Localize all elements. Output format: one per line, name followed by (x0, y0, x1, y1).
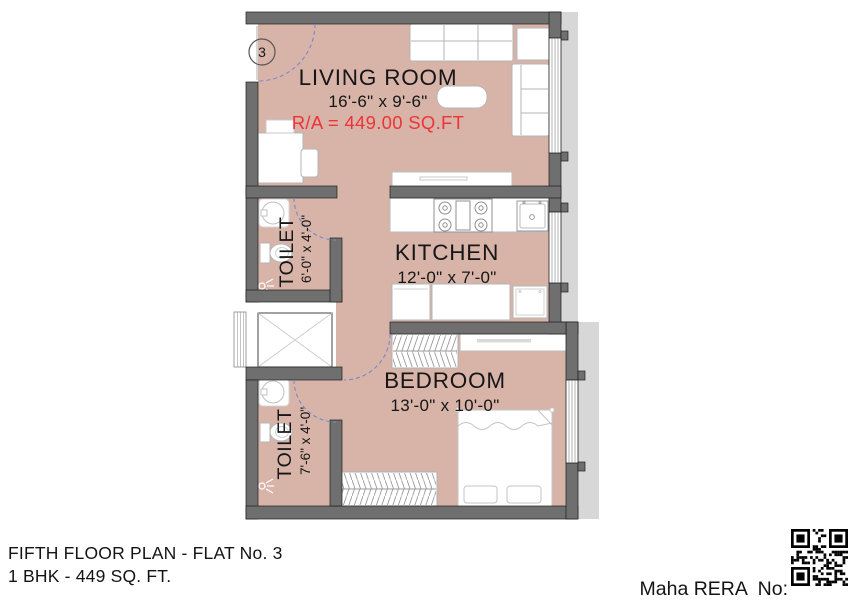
plan-title: FIFTH FLOOR PLAN - FLAT No. 3 (8, 542, 283, 565)
kitchen-sink (517, 201, 548, 231)
bedroom-dims: 13'-0" x 10'-0" (390, 396, 499, 415)
pillow (507, 486, 541, 503)
rera-info: Maha RERA No: PR1180002502190 (555, 529, 788, 600)
bedroom-window (566, 380, 578, 463)
kitchen-platform (432, 284, 510, 320)
sofa (410, 24, 513, 61)
wardrobe-top (392, 334, 458, 368)
flat-number: 3 (258, 44, 266, 60)
plan-subtitle: 1 BHK - 449 SQ. FT. (8, 565, 283, 588)
pillow (464, 486, 497, 503)
rera-label: Maha RERA No: (555, 577, 788, 600)
armchair (512, 64, 549, 136)
living-room-label: LIVING ROOM (299, 65, 458, 90)
side-table (517, 28, 549, 60)
toilet2-label: TOILET (274, 409, 296, 480)
lift-shaft (258, 313, 332, 367)
kitchen-window (549, 212, 561, 283)
plan-caption: FIFTH FLOOR PLAN - FLAT No. 3 1 BHK - 44… (8, 542, 283, 588)
bed (456, 408, 554, 507)
gas-stove (434, 199, 492, 232)
toilet2-dims: 7'-6" x 4'-0" (298, 407, 313, 475)
living-room-window (549, 38, 561, 153)
washing-machine (513, 286, 547, 318)
toilet1-dims: 6'-0" x 4'-0" (299, 215, 314, 283)
desk-chair (301, 149, 318, 177)
living-room-area: R/A = 449.00 SQ.FT (292, 112, 465, 133)
wardrobe-bottom (340, 472, 437, 506)
qr-code-icon (791, 529, 848, 586)
living-room-dims: 16'-6" x 9'-6" (328, 92, 427, 111)
refrigerator (392, 284, 430, 320)
kitchen-dims: 12'-0" x 7'-0" (397, 268, 496, 287)
floor-plan-page: 3 LIVING ROOM 16'-6" x 9'-6" R/A = 449.0… (0, 0, 850, 600)
toilet1-label: TOILET (276, 217, 298, 288)
washbasin (259, 379, 289, 406)
lift-vent-hatch (234, 312, 246, 367)
bedroom-label: BEDROOM (384, 368, 506, 393)
dresser (460, 334, 566, 351)
floor-plan-drawing: 3 LIVING ROOM 16'-6" x 9'-6" R/A = 449.0… (0, 0, 850, 600)
kitchen-label: KITCHEN (395, 240, 499, 265)
